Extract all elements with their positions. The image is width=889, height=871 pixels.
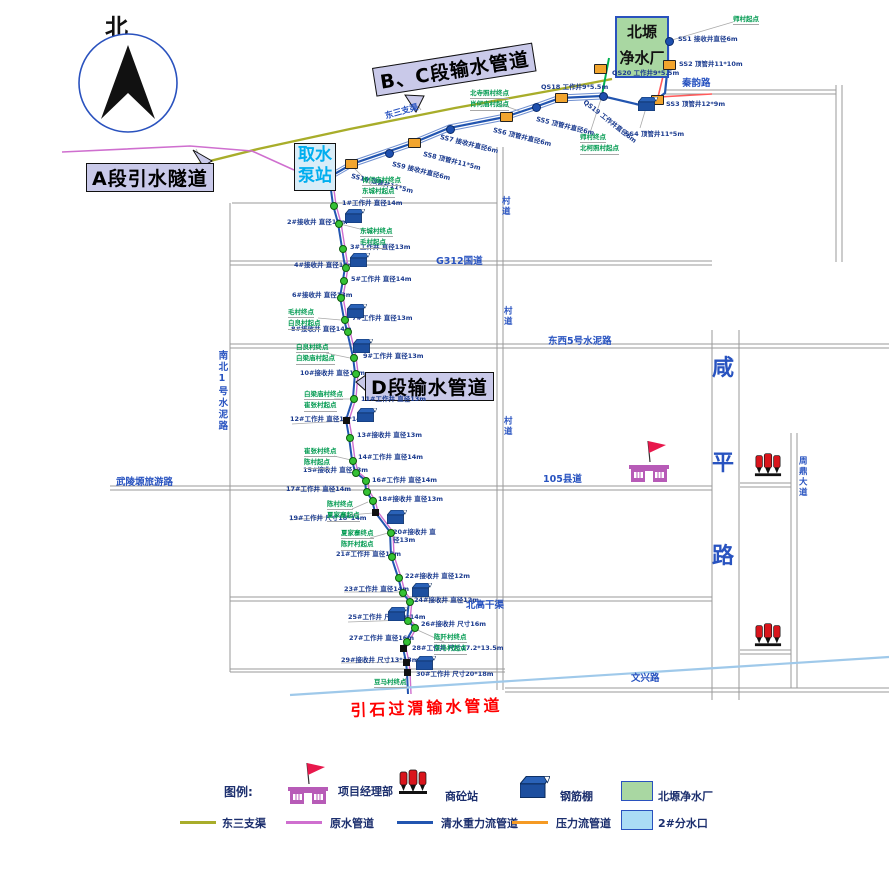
well-marker-16hash (362, 477, 370, 485)
road-label-xianping: 路 (712, 538, 734, 570)
village-note-line: 崔张村终点 (304, 446, 337, 457)
road-label: 105县道 (543, 474, 582, 485)
village-note-line: 肖何庙村终点 (362, 175, 401, 186)
village-note-line: 夏家寨起点 (327, 510, 360, 521)
well-marker-10hash (352, 370, 360, 378)
village-note: 夏家寨终点陈阡村起点 (341, 528, 374, 551)
village-note-line: 北柯照村起点 (580, 143, 619, 154)
village-note-line: 崔张村起点 (304, 400, 337, 411)
well-marker-SS10 (345, 159, 358, 169)
legend-title: 图例: (224, 783, 253, 800)
village-note-line: 白梁庙村起点 (296, 353, 335, 364)
village-note: 白梁庙村终点崔张村起点 (304, 389, 343, 412)
village-note: 白良村终点白梁庙村起点 (296, 342, 335, 365)
rebar-shed-icon (412, 582, 432, 601)
pump-station-box: 取水 泵站 (294, 143, 336, 191)
village-note: 陈阡村终点豆马村起点 (434, 632, 467, 655)
road-label: 周鼎大道 (797, 456, 807, 498)
legend-label: 2#分水口 (658, 815, 708, 831)
well-marker-SS9 (385, 149, 394, 158)
well-label-16hash: 16#工作井 直径14m (372, 477, 437, 485)
village-note-line: 毛村终点 (288, 307, 314, 318)
legend-line-swatch (180, 821, 216, 824)
well-label-QS20: QS20 工作井9*5.5m (612, 70, 679, 78)
village-note-line: 东城村起点 (362, 186, 395, 197)
well-marker-QS19 (599, 92, 608, 101)
legend-label: 项目经理部 (338, 783, 393, 799)
well-label-SS3: SS3 顶管井12*9m (666, 101, 725, 109)
village-note-line: 毛村起点 (360, 237, 386, 248)
village-note-line: 肖何庙村起点 (470, 99, 509, 110)
road-label: 东西5号水泥路 (548, 336, 612, 347)
village-note-line: 豆马村起点 (434, 643, 467, 654)
well-label-13hash: 13#接收井 直径13m (357, 432, 422, 440)
legend-label: 商砼站 (445, 788, 478, 804)
well-marker-15hash (352, 469, 360, 477)
legend-swatch (621, 810, 653, 830)
well-marker-20hash (387, 529, 395, 537)
well-marker-1hash (330, 202, 338, 210)
well-marker-8hash (344, 328, 352, 336)
well-marker-4hash (342, 264, 350, 272)
rebar-shed-icon (353, 338, 373, 357)
village-note-line: 北寺照村终点 (470, 88, 509, 99)
well-label-14hash: 14#工作井 直径14m (358, 454, 423, 462)
water-plant-line1: 北塬 (617, 20, 667, 46)
well-label-SS2: SS2 顶管井11*10m (679, 61, 743, 69)
well-marker-2hash (335, 220, 343, 228)
well-marker-QS20 (594, 64, 607, 74)
well-marker-14hash (349, 457, 357, 465)
village-note: 东城村终点毛村起点 (360, 226, 393, 249)
pump-station-line1: 取水 (295, 145, 335, 166)
well-marker-12hash (343, 417, 350, 424)
road-label: 文兴路 (631, 673, 660, 684)
village-note-line: 白良村终点 (296, 342, 329, 353)
well-marker-6hash (337, 294, 345, 302)
well-marker-13hash (346, 434, 354, 442)
rebar-shed-icon (387, 509, 407, 528)
well-marker-SS2 (663, 60, 676, 70)
well-marker-17hash (363, 488, 371, 496)
pump-station-line2: 泵站 (295, 166, 335, 187)
well-label-20hash: 20#接收井 直径13m (393, 528, 441, 544)
well-marker-SS6 (500, 112, 513, 122)
village-note-line: 夏家寨终点 (341, 528, 374, 539)
legend-line-swatch (512, 821, 548, 824)
well-marker-SS7 (446, 125, 455, 134)
road-label: 南北1号水泥路 (216, 350, 227, 432)
well-marker-30hash (404, 669, 411, 676)
village-note-line: 白良村起点 (288, 318, 321, 329)
well-marker-QS18 (555, 93, 568, 103)
legend-label: 压力流管道 (556, 815, 611, 831)
well-marker-11hash (350, 395, 358, 403)
well-marker-19hash (372, 509, 379, 516)
well-marker-26hash (411, 624, 419, 632)
well-label-17hash: 17#工作井 直径14m (286, 486, 351, 494)
legend-label: 北塬净水厂 (658, 788, 713, 804)
village-note-line: 东城村终点 (360, 226, 393, 237)
village-note: 师村起点 (733, 14, 759, 25)
village-note: 毛村终点白良村起点 (288, 307, 321, 330)
legend-project-office-icon (285, 760, 331, 810)
village-note-line: 陈村起点 (304, 457, 330, 468)
well-marker-29hash (403, 659, 410, 666)
well-marker-SS1 (665, 37, 674, 46)
village-note-line: 白梁庙村终点 (304, 389, 343, 400)
road-label-xianping: 咸 (712, 350, 734, 382)
rebar-shed-icon (357, 407, 377, 426)
village-note: 豆马村终点 (374, 677, 407, 688)
well-label-SS1: SS1 接收井直径6m (678, 36, 738, 44)
well-marker-18hash (369, 497, 377, 505)
village-note: 北寺照村终点肖何庙村起点 (470, 88, 509, 111)
road-label: 村道 (502, 306, 512, 327)
well-marker-28hash (400, 645, 407, 652)
water-plant-line2: 净水厂 (617, 46, 667, 72)
legend-line-swatch (397, 821, 433, 824)
rebar-shed-icon (350, 252, 370, 271)
leader-line (318, 318, 341, 320)
village-note: 崔张村终点陈村起点 (304, 446, 337, 469)
well-marker-3hash (339, 245, 347, 253)
rebar-shed-icon (416, 655, 436, 674)
legend-label: 东三支渠 (222, 815, 266, 831)
road-label: 武陵塬旅游路 (116, 477, 173, 488)
village-note-line: 师村终点 (580, 132, 606, 143)
rebar-shed-icon (345, 208, 365, 227)
legend-line-swatch (286, 821, 322, 824)
village-note-line: 陈阡村终点 (434, 632, 467, 643)
well-label-QS18: QS18 工作井9*5.5m (541, 84, 608, 92)
village-note-line: 豆马村终点 (374, 677, 407, 688)
pipeline-map: 北 北塬 净水厂 取水 泵站 A段引水隧道 B、C段输水管道 D段输水管道 引石… (0, 0, 889, 871)
road-label: 村道 (500, 196, 510, 217)
well-label-12hash: 12#工作井 直径18*14m (290, 416, 368, 424)
well-label-18hash: 18#接收井 直径13m (378, 496, 443, 504)
compass-icon (58, 25, 218, 165)
village-note-line: 陈村终点 (327, 499, 353, 510)
road-label: 秦韵路 (682, 78, 711, 89)
legend-swatch (621, 781, 653, 801)
well-marker-23hash (399, 589, 407, 597)
well-marker-22hash (395, 574, 403, 582)
rebar-shed-icon (388, 606, 408, 625)
rebar-shed-icon (347, 303, 367, 322)
village-note-line: 陈阡村起点 (341, 539, 374, 550)
legend-rebar-shed-icon (520, 776, 550, 802)
legend-label: 钢筋棚 (560, 788, 593, 804)
well-label-5hash: 5#工作井 直径14m (351, 276, 412, 284)
concrete-station-icon (754, 620, 782, 652)
legend-concrete-station-icon (398, 766, 428, 800)
road-label: G312国道 (436, 256, 483, 267)
well-marker-SS8 (408, 138, 421, 148)
road-label-xianping: 平 (712, 445, 734, 477)
well-label-25hash: 25#工作井 尺寸19*14m (348, 614, 426, 622)
well-marker-SS5 (532, 103, 541, 112)
concrete-station-icon (754, 450, 782, 482)
well-label-26hash: 26#接收井 尺寸16m (421, 621, 486, 629)
well-label-1hash: 1#工作井 直径14m (342, 200, 403, 208)
village-note: 肖何庙村终点东城村起点 (362, 175, 401, 198)
legend-label: 原水管道 (330, 815, 374, 831)
project-office-icon (626, 438, 672, 488)
well-label-22hash: 22#接收井 直径12m (405, 573, 470, 581)
legend-label: 清水重力流管道 (441, 815, 518, 831)
road-label: 村道 (502, 416, 512, 437)
road-label: 北高干渠 (466, 600, 504, 611)
rebar-shed-icon (638, 96, 658, 115)
village-note-line: 师村起点 (733, 14, 759, 25)
well-marker-5hash (340, 277, 348, 285)
banner-tunnel-a: A段引水隧道 (86, 163, 214, 192)
village-note: 陈村终点夏家寨起点 (327, 499, 360, 522)
village-note: 师村终点北柯照村起点 (580, 132, 619, 155)
well-marker-21hash (388, 553, 396, 561)
well-label-11hash: 11#工作井 直径13m (361, 396, 426, 404)
